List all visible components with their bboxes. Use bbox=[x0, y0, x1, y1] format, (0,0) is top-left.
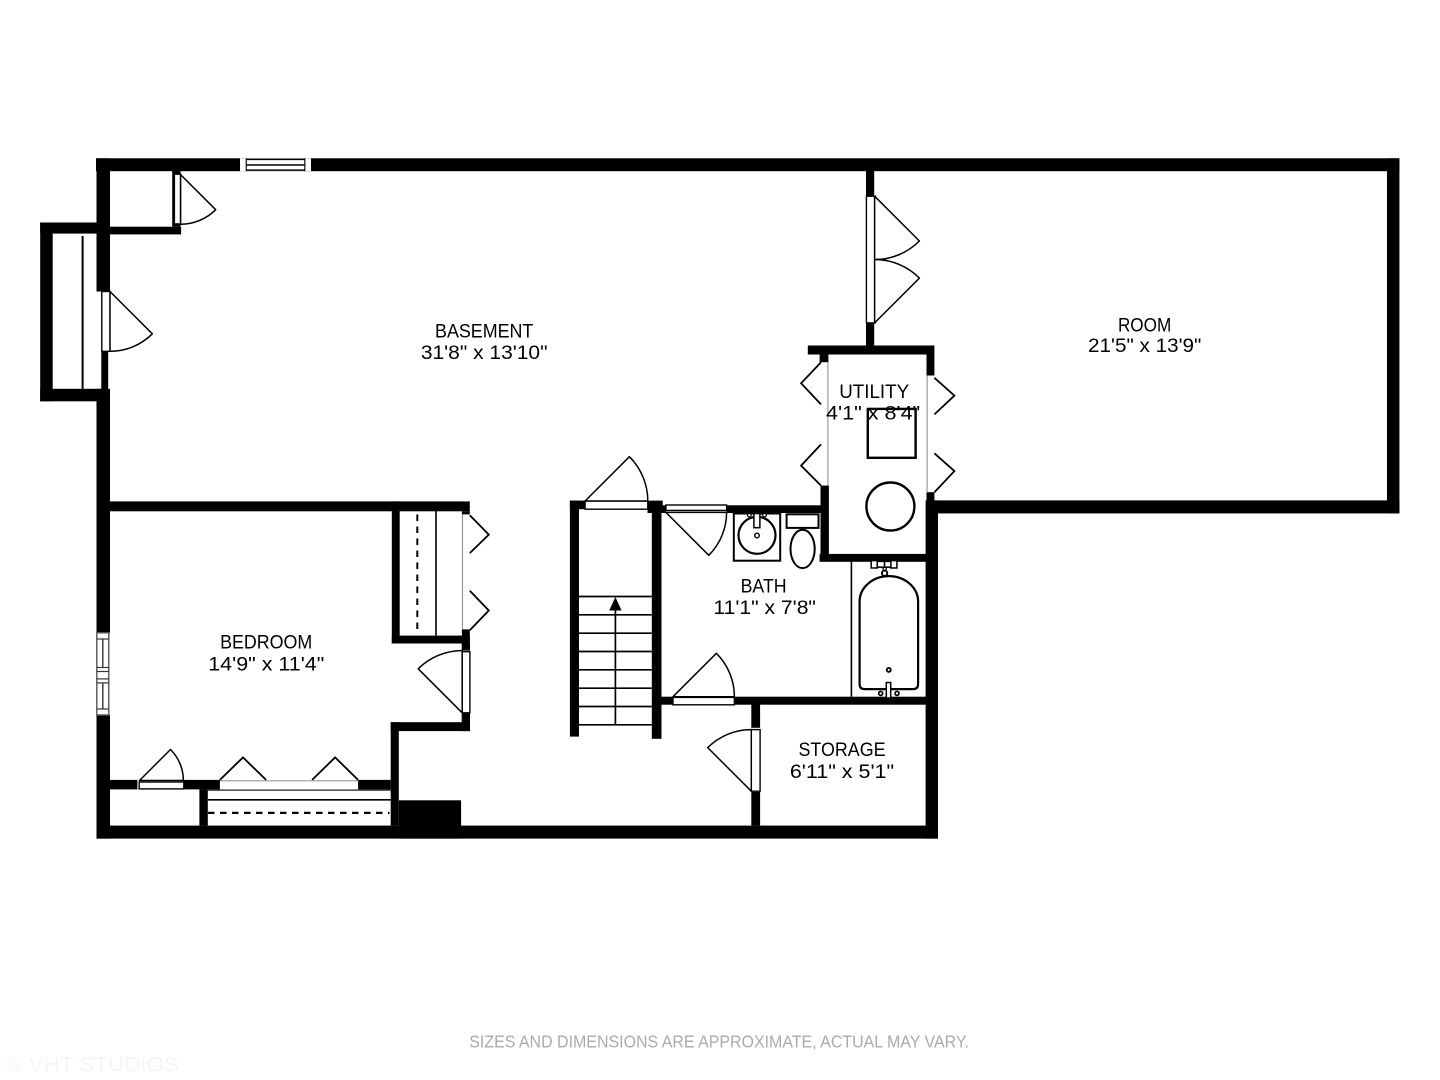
svg-text:14'9" x 11'4": 14'9" x 11'4" bbox=[208, 654, 324, 675]
svg-text:BEDROOM: BEDROOM bbox=[220, 632, 312, 653]
svg-text:© VHT STUDIOS: © VHT STUDIOS bbox=[6, 1054, 179, 1077]
svg-text:UTILITY: UTILITY bbox=[839, 382, 909, 403]
svg-text:BATH: BATH bbox=[741, 577, 787, 598]
svg-text:BASEMENT: BASEMENT bbox=[435, 322, 534, 343]
svg-text:ROOM: ROOM bbox=[1118, 315, 1171, 336]
svg-text:4'1" x 8'4": 4'1" x 8'4" bbox=[826, 404, 920, 425]
svg-text:11'1" x 7'8": 11'1" x 7'8" bbox=[713, 598, 816, 619]
svg-text:21'5" x 13'9": 21'5" x 13'9" bbox=[1088, 336, 1201, 357]
svg-text:SIZES AND DIMENSIONS ARE APPRO: SIZES AND DIMENSIONS ARE APPROXIMATE, AC… bbox=[469, 1031, 969, 1051]
svg-text:6'11" x 5'1": 6'11" x 5'1" bbox=[790, 762, 894, 783]
svg-text:31'8" x 13'10": 31'8" x 13'10" bbox=[421, 343, 548, 364]
svg-text:STORAGE: STORAGE bbox=[798, 740, 885, 761]
